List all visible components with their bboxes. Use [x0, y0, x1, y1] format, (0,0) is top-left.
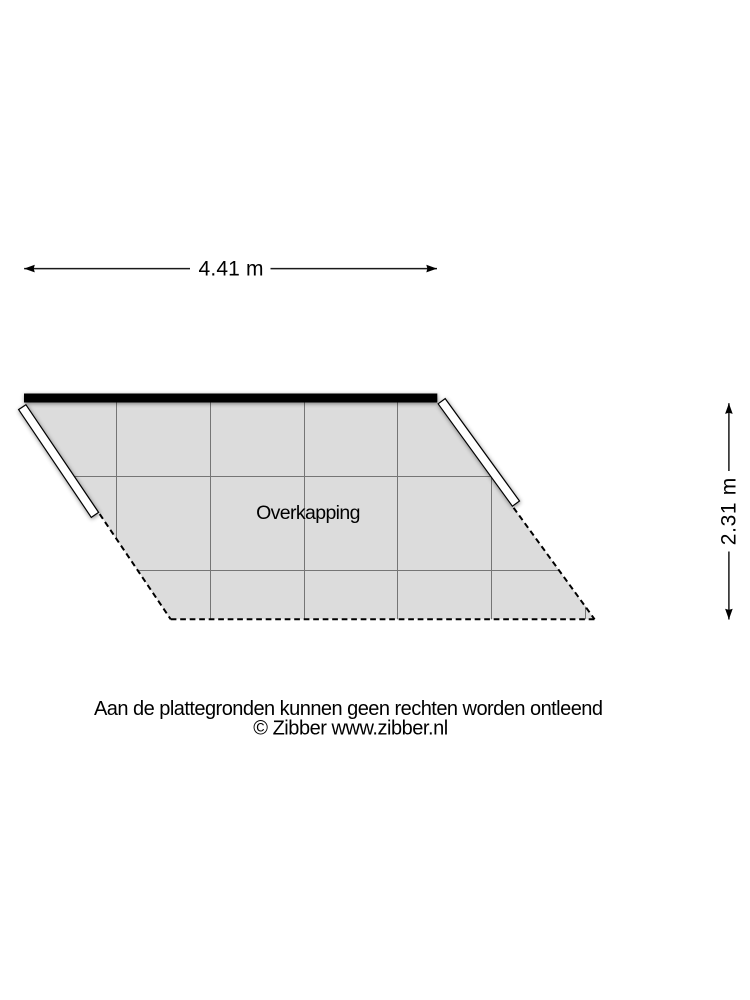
svg-text:2.31 m: 2.31 m — [718, 478, 741, 546]
svg-text:Overkapping: Overkapping — [256, 502, 360, 524]
svg-text:4.41 m: 4.41 m — [199, 258, 264, 281]
svg-text:© Zibber www.zibber.nl: © Zibber www.zibber.nl — [253, 718, 448, 740]
